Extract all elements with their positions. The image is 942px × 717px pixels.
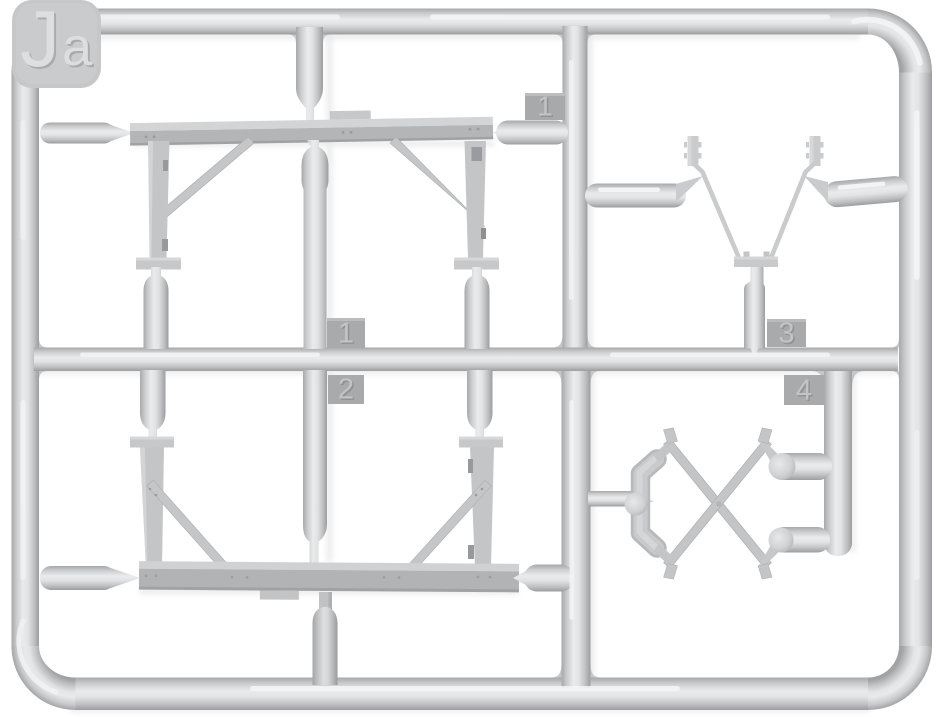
- svg-text:4: 4: [796, 375, 812, 407]
- svg-text:J: J: [20, 0, 60, 83]
- svg-text:3: 3: [778, 318, 794, 350]
- svg-text:1: 1: [537, 91, 553, 122]
- svg-text:a: a: [62, 17, 93, 77]
- svg-text:2: 2: [338, 374, 354, 406]
- svg-text:1: 1: [338, 318, 354, 350]
